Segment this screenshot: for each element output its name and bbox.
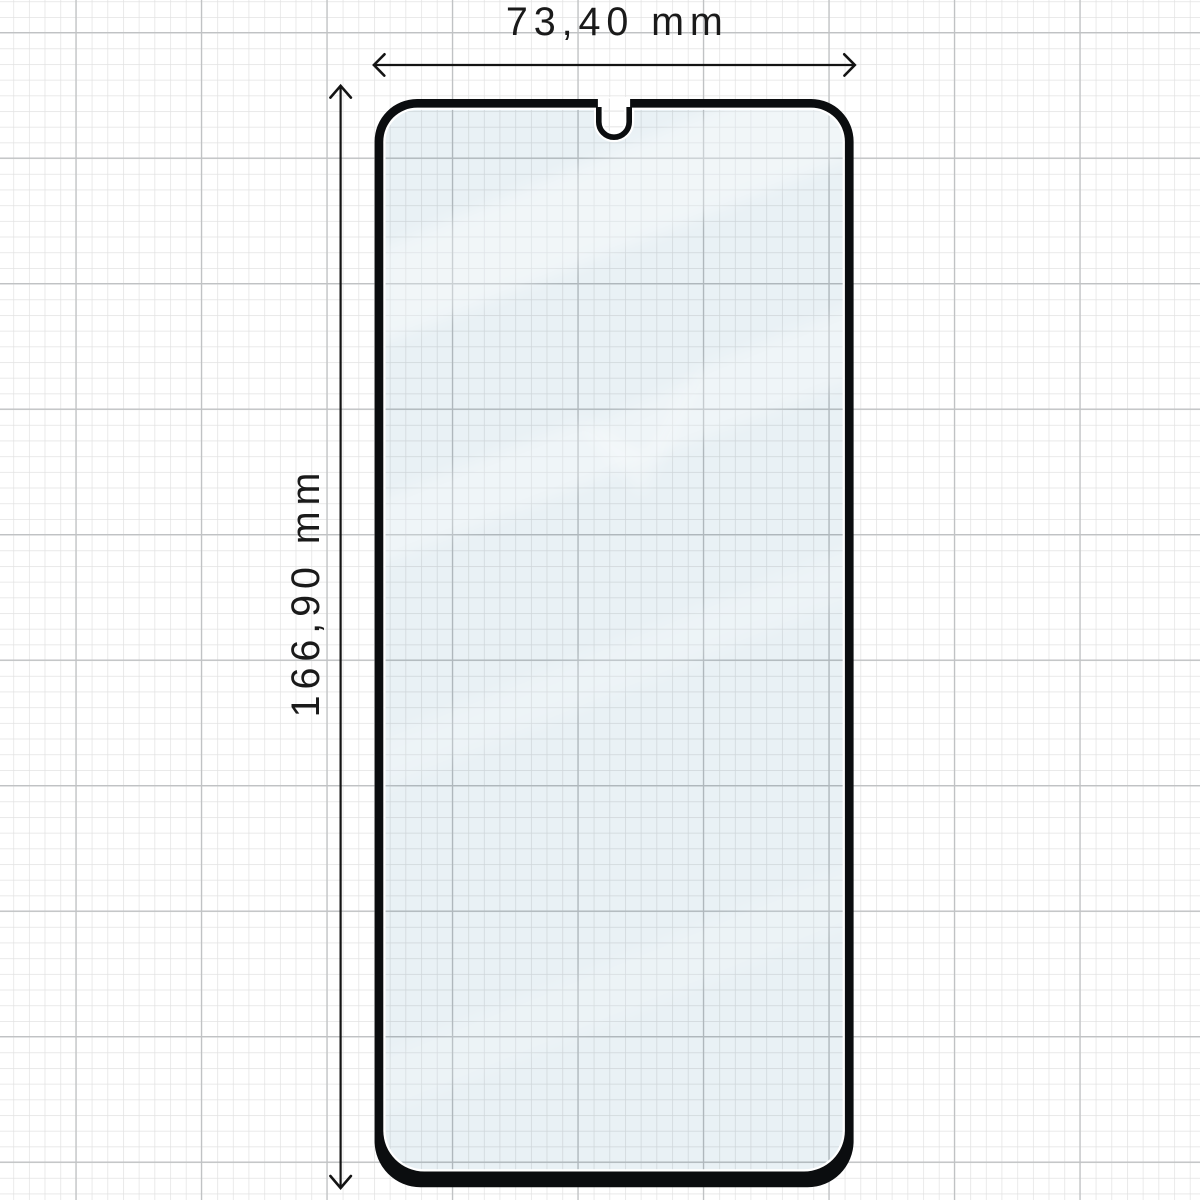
svg-text:73,40 mm: 73,40 mm bbox=[506, 0, 729, 44]
svg-text:166,90 mm: 166,90 mm bbox=[284, 467, 328, 718]
